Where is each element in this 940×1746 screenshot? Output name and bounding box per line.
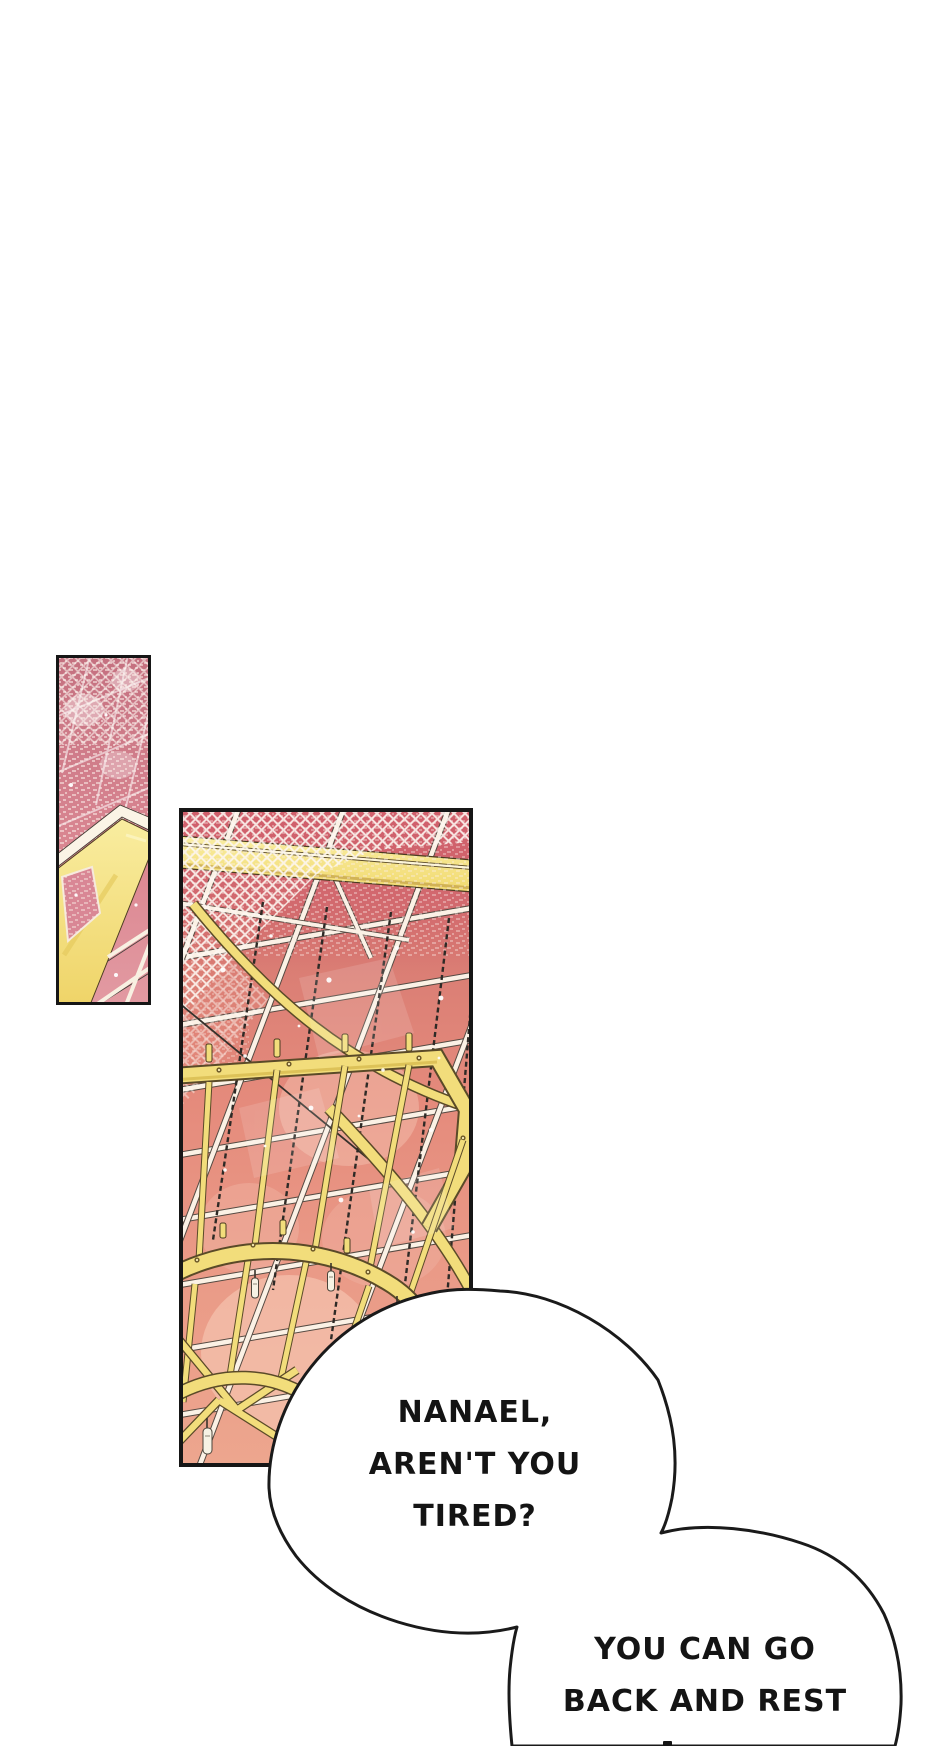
bubble2-line1: YOU CAN GO [505, 1624, 905, 1676]
bubble1-line2: AREN'T YOU [275, 1439, 675, 1491]
bubble2-line2: BACK AND REST [505, 1676, 905, 1728]
comic-page: NANAEL, AREN'T YOU TIRED? YOU CAN GO BAC… [0, 0, 940, 1746]
bubble1-line1: NANAEL, [275, 1387, 675, 1439]
speech-bubble-1-text: NANAEL, AREN'T YOU TIRED? [275, 1387, 675, 1543]
cutoff-text-mark [663, 1741, 672, 1746]
bubble1-line3: TIRED? [275, 1491, 675, 1543]
speech-bubble-2-text: YOU CAN GO BACK AND REST [505, 1624, 905, 1728]
